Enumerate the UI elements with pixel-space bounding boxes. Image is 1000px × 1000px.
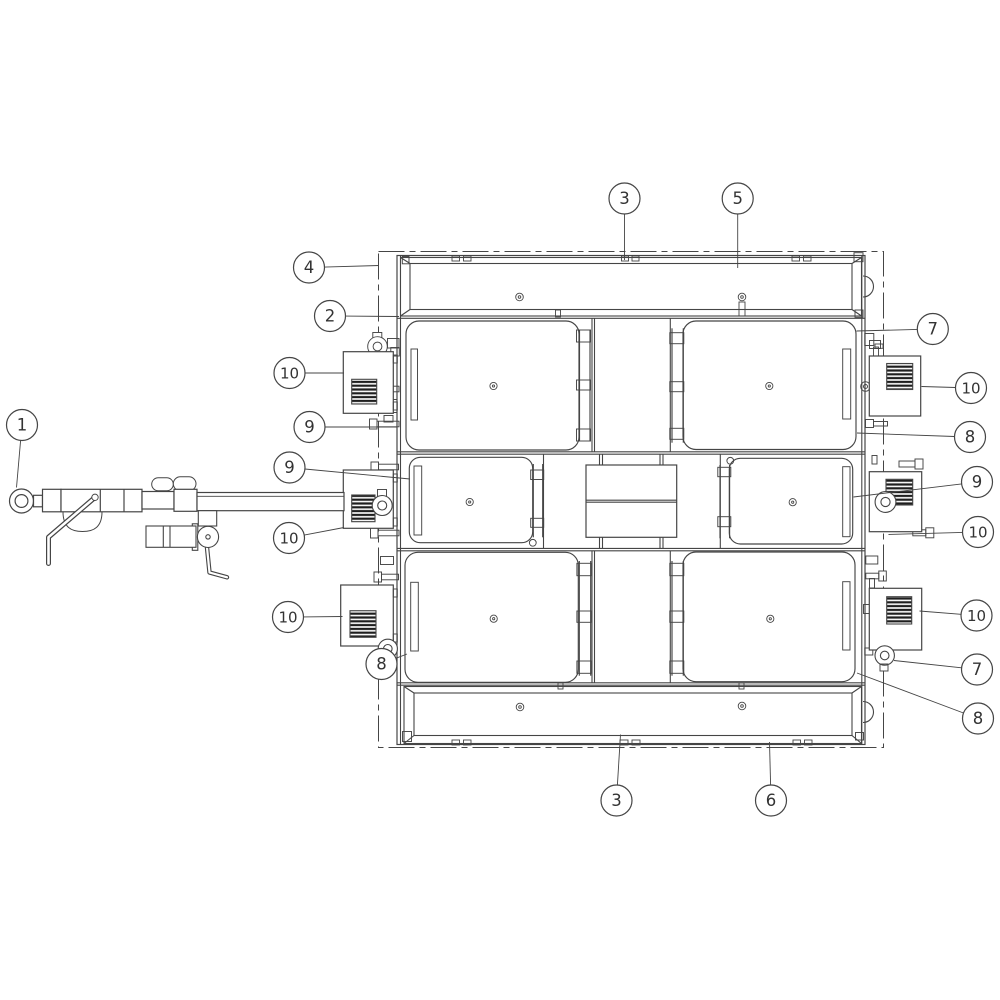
- callout-balloon-7-11: 7: [857, 314, 949, 345]
- vent-grille: [352, 495, 375, 522]
- balloon-label: 10: [961, 380, 980, 398]
- leader-line: [920, 611, 962, 614]
- hatch-door-top-right: [670, 321, 856, 450]
- coupler: [43, 489, 62, 512]
- parts-diagram-page: 142109910108357108910107836: [0, 0, 1000, 1000]
- valve-handwheel: [875, 492, 896, 513]
- leader-line: [857, 673, 964, 713]
- lunette-eye-ring: [10, 489, 34, 513]
- balloon-label: 4: [304, 258, 315, 277]
- callout-balloon-9-4: 9: [294, 412, 397, 443]
- vent-grille: [352, 379, 377, 404]
- vent-grille: [887, 364, 913, 390]
- callout-balloon-10-6: 10: [274, 523, 345, 554]
- balloon-label: 7: [928, 320, 939, 339]
- lever-pivot: [92, 494, 98, 500]
- balloon-label: 9: [972, 473, 983, 492]
- vent-grille: [887, 597, 912, 624]
- balloon-label: 10: [968, 524, 987, 542]
- center-equipment-box: [586, 454, 677, 548]
- leader-line: [17, 440, 21, 487]
- hatch-door-bottom-right: [670, 552, 855, 682]
- blower-box-right-bottom: [869, 588, 921, 671]
- landing-jack-assembly: [146, 511, 227, 578]
- roof-panel-rear: [403, 683, 874, 745]
- hatch-door-mid-right: [718, 457, 853, 544]
- roof-panel-front: [401, 253, 874, 318]
- blower-box-left-bottom: [341, 585, 398, 658]
- balloon-label: 8: [965, 428, 976, 447]
- coupler-housing: [61, 489, 142, 512]
- balloon-label: 3: [619, 189, 630, 208]
- balloon-label: 5: [732, 189, 743, 208]
- valve-handwheel: [875, 646, 894, 665]
- leader-line: [325, 266, 380, 268]
- hatch-door-bottom-left: [405, 552, 591, 682]
- balloon-label: 7: [972, 660, 983, 679]
- balloon-label: 10: [967, 607, 986, 625]
- leader-line: [857, 329, 918, 331]
- blower-box-right-top: [869, 344, 920, 416]
- leader-line: [857, 433, 955, 437]
- balloon-label: 10: [279, 530, 298, 548]
- callout-balloon-10-7: 10: [273, 602, 343, 633]
- balloon-label: 9: [284, 458, 295, 477]
- jack-wheel: [197, 526, 218, 547]
- safety-chain-shackle: [173, 477, 196, 491]
- blower-box-right-middle: [869, 472, 921, 532]
- callout-balloon-1-0: 1: [7, 410, 38, 488]
- callout-balloon-10-16: 10: [920, 600, 993, 631]
- leader-line: [922, 387, 956, 388]
- hatch-door-top-left: [406, 321, 591, 450]
- callout-balloon-7-17: 7: [894, 654, 993, 685]
- leader-line: [894, 661, 962, 668]
- safety-chain-shackle: [152, 478, 174, 491]
- hatch-door-mid-left: [409, 457, 543, 546]
- balloon-label: 10: [278, 609, 297, 627]
- leader-line: [304, 528, 344, 536]
- drawbar-tube: [197, 493, 344, 511]
- callout-balloon-10-12: 10: [922, 373, 987, 404]
- balloon-label: 8: [376, 655, 387, 674]
- callout-balloon-4-1: 4: [294, 252, 380, 283]
- callout-balloon-6-20: 6: [756, 742, 787, 816]
- balloon-label: 3: [611, 791, 622, 810]
- balloon-label: 6: [766, 791, 777, 810]
- blower-box-left-top: [343, 352, 397, 414]
- balloon-label: 1: [17, 416, 28, 435]
- balloon-label: 2: [325, 307, 336, 326]
- valve-handwheel: [372, 496, 392, 516]
- jack-bracket: [146, 526, 196, 547]
- blower-box-left-middle: [343, 470, 397, 528]
- callout-balloon-2-2: 2: [315, 301, 400, 332]
- leader-line: [770, 742, 771, 785]
- callout-balloon-3-9: 3: [609, 183, 640, 260]
- vent-grille: [350, 611, 376, 638]
- balloon-label: 10: [280, 365, 299, 383]
- callout-balloon-10-3: 10: [274, 358, 344, 389]
- balloon-label: 8: [973, 709, 984, 728]
- parts-diagram-canvas: 142109910108357108910107836: [0, 0, 1000, 1000]
- balloon-label: 9: [304, 418, 315, 437]
- callout-balloon-3-19: 3: [601, 735, 632, 817]
